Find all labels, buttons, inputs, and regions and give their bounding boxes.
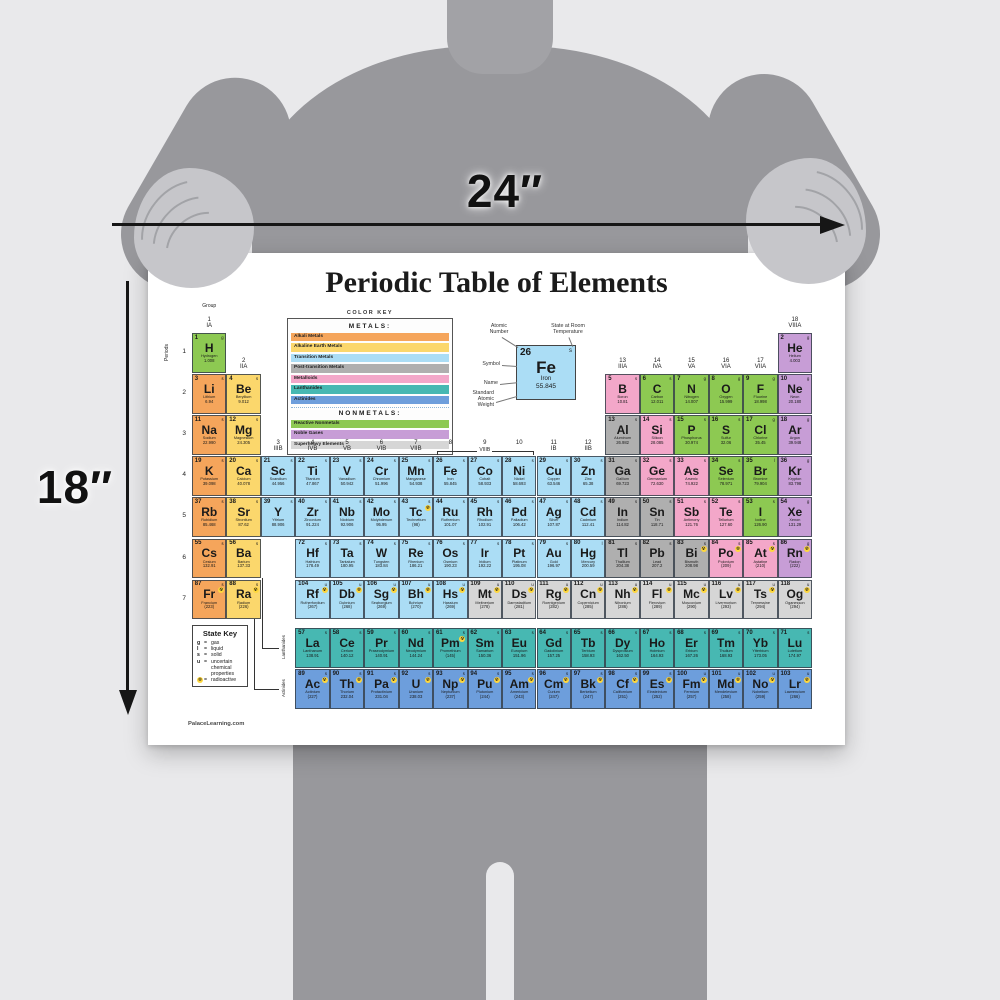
element-cell-Zr: 40sZrZirconium91.224 — [295, 497, 329, 537]
element-cell-Ce: 58sCeCerium140.12 — [330, 628, 364, 668]
element-cell-Np: 93s☢NpNeptunium(237) — [433, 669, 467, 709]
element-cell-Eu: 63sEuEuropium151.96 — [502, 628, 536, 668]
height-arrow-shaft — [126, 281, 129, 693]
lanthanides-label: Lanthanides — [281, 628, 291, 667]
radioactive-icon: ☢ — [425, 505, 431, 511]
element-cell-Am: 95s☢AmAmericium(243) — [502, 669, 536, 709]
radioactive-icon: ☢ — [494, 587, 500, 593]
element-cell-K: 19sKPotassium39.098 — [192, 456, 226, 496]
periodic-table: 1gHHydrogen1.0082gHeHelium4.0033sLiLithi… — [148, 253, 845, 745]
element-cell-Se: 34sSeSelenium78.971 — [709, 456, 743, 496]
element-cell-Es: 99s☢EsEinsteinium(252) — [640, 669, 674, 709]
radioactive-icon: ☢ — [459, 636, 465, 642]
element-cell-Sn: 50sSnTin118.71 — [640, 497, 674, 537]
element-cell-Yb: 70sYbYtterbium173.05 — [743, 628, 777, 668]
radioactive-icon: ☢ — [528, 677, 534, 683]
radioactive-icon: ☢ — [459, 677, 465, 683]
mannequin-leg-gap — [486, 862, 514, 1000]
element-cell-Bi: 83s☢BiBismuth208.98 — [674, 539, 708, 579]
state-key-entry: ☢=radioactive — [197, 677, 243, 683]
element-cell-Ra: 88s☢RaRadium(226) — [226, 580, 260, 620]
element-cell-Mn: 25sMnManganese54.938 — [399, 456, 433, 496]
element-cell-Fm: 100u☢FmFermium(257) — [674, 669, 708, 709]
element-cell-Po: 84s☢PoPolonium(209) — [709, 539, 743, 579]
period-number-1: 1 — [174, 348, 186, 355]
element-cell-Ta: 73sTaTantalum180.95 — [330, 539, 364, 579]
period-number-2: 2 — [174, 389, 186, 396]
group-label-17: 17VIIA — [743, 358, 777, 371]
element-cell-N: 7gNNitrogen14.007 — [674, 374, 708, 414]
radioactive-icon: ☢ — [563, 677, 569, 683]
brand-url: PalaceLearning.com — [188, 721, 244, 727]
element-cell-Ac: 89s☢AcActinium(227) — [295, 669, 329, 709]
radioactive-icon: ☢ — [701, 677, 707, 683]
element-cell-Br: 35lBrBromine79.904 — [743, 456, 777, 496]
radioactive-icon: ☢ — [632, 587, 638, 593]
element-cell-Lv: 116u☢LvLivermorium(293) — [709, 580, 743, 620]
group-label-15: 15VA — [674, 358, 708, 371]
element-cell-Th: 90s☢ThThorium232.04 — [330, 669, 364, 709]
height-dimension-label: 18″ — [30, 460, 120, 514]
element-cell-Ne: 10gNeNeon20.180 — [778, 374, 812, 414]
element-cell-Ar: 18gArArgon39.948 — [778, 415, 812, 455]
element-cell-Cd: 48sCdCadmium112.41 — [571, 497, 605, 537]
element-cell-Fr: 87s☢FrFrancium(223) — [192, 580, 226, 620]
radioactive-icon: ☢ — [735, 546, 741, 552]
width-arrowhead-icon — [820, 216, 845, 234]
element-cell-Mo: 42sMoMolybdenum95.95 — [364, 497, 398, 537]
width-dimension-label: 24″ — [395, 164, 615, 218]
element-cell-As: 33sAsArsenic74.922 — [674, 456, 708, 496]
group-label-14: 14IVA — [640, 358, 674, 371]
element-cell-Cr: 24sCrChromium51.996 — [364, 456, 398, 496]
radioactive-icon: ☢ — [425, 587, 431, 593]
element-cell-Xe: 54gXeXenon131.29 — [778, 497, 812, 537]
group-axis-caption: Group — [192, 303, 226, 309]
element-cell-I: 53sIIodine126.90 — [743, 497, 777, 537]
periodic-table-poster: Periodic Table of Elements COLOR KEY MET… — [148, 253, 845, 745]
element-cell-F: 9gFFluorine18.998 — [743, 374, 777, 414]
group-label-13: 13IIIA — [605, 358, 639, 371]
group-label-2: 2IIA — [226, 358, 260, 371]
element-cell-Pb: 82sPbLead207.2 — [640, 539, 674, 579]
element-cell-Kr: 36gKrKrypton83.798 — [778, 456, 812, 496]
group-label-4: 4IVB — [295, 440, 329, 453]
actinide-bracket — [254, 619, 279, 690]
element-cell-Pr: 59sPrPraseodymium140.91 — [364, 628, 398, 668]
height-arrowhead-icon — [119, 690, 137, 715]
element-cell-Pm: 61s☢PmPromethium(145) — [433, 628, 467, 668]
element-cell-Te: 52sTeTellurium127.60 — [709, 497, 743, 537]
element-cell-Cs: 55sCsCesium132.91 — [192, 539, 226, 579]
product-photo: Periodic Table of Elements COLOR KEY MET… — [0, 0, 1000, 1000]
element-cell-Rh: 45sRhRhodium102.91 — [468, 497, 502, 537]
viiib-label: VIIIB — [433, 447, 536, 453]
radioactive-icon: ☢ — [597, 677, 603, 683]
group-label-18: 18VIIIA — [778, 317, 812, 330]
element-cell-Og: 118u☢OgOganesson(294) — [778, 580, 812, 620]
element-cell-Si: 14sSiSilicon28.085 — [640, 415, 674, 455]
group-label-7: 7VIIB — [399, 440, 433, 453]
element-cell-Rb: 37sRbRubidium85.468 — [192, 497, 226, 537]
period-number-3: 3 — [174, 430, 186, 437]
radioactive-icon: ☢ — [701, 587, 707, 593]
element-cell-Au: 79sAuGold196.97 — [537, 539, 571, 579]
radioactive-icon: ☢ — [494, 677, 500, 683]
element-cell-C: 6sCCarbon12.011 — [640, 374, 674, 414]
element-cell-Ni: 28sNiNickel58.693 — [502, 456, 536, 496]
element-cell-Hs: 108u☢HsHassium(269) — [433, 580, 467, 620]
element-cell-Tm: 69sTmThulium168.93 — [709, 628, 743, 668]
element-cell-At: 85s☢AtAstatine(210) — [743, 539, 777, 579]
mannequin-torso — [252, 46, 748, 278]
element-cell-P: 15sPPhosphorus30.974 — [674, 415, 708, 455]
group-label-8: 8 — [433, 440, 467, 447]
element-cell-Co: 27sCoCobalt58.933 — [468, 456, 502, 496]
element-cell-Sc: 21sScScandium44.956 — [261, 456, 295, 496]
element-cell-Pt: 78sPtPlatinum195.08 — [502, 539, 536, 579]
radioactive-icon: ☢ — [804, 546, 810, 552]
element-cell-Ag: 47sAgSilver107.87 — [537, 497, 571, 537]
radioactive-icon: ☢ — [253, 587, 259, 593]
element-cell-Cn: 112u☢CnCopernicium(285) — [571, 580, 605, 620]
element-cell-U: 92s☢UUranium238.03 — [399, 669, 433, 709]
group-label-9: 9 — [468, 440, 502, 447]
element-cell-Tc: 43s☢TcTechnetium(98) — [399, 497, 433, 537]
element-cell-Hg: 80lHgMercury200.59 — [571, 539, 605, 579]
element-cell-Cu: 29sCuCopper63.546 — [537, 456, 571, 496]
element-cell-Nb: 41sNbNiobium92.906 — [330, 497, 364, 537]
element-cell-Pa: 91s☢PaProtactinium231.04 — [364, 669, 398, 709]
group-label-11: 11IB — [537, 440, 571, 453]
element-cell-Hf: 72sHfHafnium178.49 — [295, 539, 329, 579]
element-cell-Bk: 97s☢BkBerkelium(247) — [571, 669, 605, 709]
element-cell-Re: 75sReRhenium186.21 — [399, 539, 433, 579]
element-cell-Fl: 114u☢FlFlerovium(289) — [640, 580, 674, 620]
element-cell-Er: 68sErErbium167.26 — [674, 628, 708, 668]
element-cell-Bh: 107u☢BhBohrium(270) — [399, 580, 433, 620]
radioactive-icon: ☢ — [666, 677, 672, 683]
radioactive-icon: ☢ — [322, 677, 328, 683]
element-cell-Ge: 32sGeGermanium72.630 — [640, 456, 674, 496]
element-cell-Ru: 44sRuRuthenium101.07 — [433, 497, 467, 537]
period-number-5: 5 — [174, 512, 186, 519]
element-cell-Y: 39sYYttrium88.906 — [261, 497, 295, 537]
element-cell-Be: 4sBeBeryllium9.012 — [226, 374, 260, 414]
radioactive-icon: ☢ — [391, 587, 397, 593]
width-arrow-shaft — [112, 223, 824, 226]
radioactive-icon: ☢ — [804, 587, 810, 593]
element-cell-Zn: 30sZnZinc65.38 — [571, 456, 605, 496]
element-cell-Fe: 26sFeIron55.845 — [433, 456, 467, 496]
element-cell-Db: 105u☢DbDubnium(268) — [330, 580, 364, 620]
element-cell-H: 1gHHydrogen1.008 — [192, 333, 226, 373]
group-label-6: 6VIB — [364, 440, 398, 453]
element-cell-Rf: 104u☢RfRutherfordium(267) — [295, 580, 329, 620]
element-cell-Lu: 71sLuLutetium174.97 — [778, 628, 812, 668]
element-cell-No: 102u☢NoNobelium(259) — [743, 669, 777, 709]
element-cell-Li: 3sLiLithium6.94 — [192, 374, 226, 414]
radioactive-icon: ☢ — [197, 677, 203, 683]
period-number-4: 4 — [174, 471, 186, 478]
element-cell-B: 5sBBoron10.81 — [605, 374, 639, 414]
element-cell-W: 74sWTungsten183.84 — [364, 539, 398, 579]
element-cell-Sg: 106u☢SgSeaborgium(269) — [364, 580, 398, 620]
element-cell-Cm: 96s☢CmCurium(247) — [537, 669, 571, 709]
element-cell-Mg: 12sMgMagnesium24.305 — [226, 415, 260, 455]
state-key-entry: u=uncertain chemical properties — [197, 659, 243, 678]
element-cell-Ga: 31sGaGallium69.723 — [605, 456, 639, 496]
radioactive-icon: ☢ — [701, 546, 707, 552]
radioactive-icon: ☢ — [356, 677, 362, 683]
element-cell-Sb: 51sSbAntimony121.76 — [674, 497, 708, 537]
group-label-3: 3IIIB — [261, 440, 295, 453]
element-cell-Ba: 56sBaBarium137.33 — [226, 539, 260, 579]
element-cell-Gd: 64sGdGadolinium157.25 — [537, 628, 571, 668]
element-cell-Pd: 46sPdPalladium106.42 — [502, 497, 536, 537]
element-cell-Mc: 115u☢McMoscovium(290) — [674, 580, 708, 620]
actinides-label: Actinides — [281, 669, 291, 708]
group-label-1: 1IA — [192, 317, 226, 330]
element-cell-Sr: 38sSrStrontium87.62 — [226, 497, 260, 537]
period-number-6: 6 — [174, 554, 186, 561]
element-cell-Md: 101u☢MdMendelevium(258) — [709, 669, 743, 709]
group-label-12: 12IIB — [571, 440, 605, 453]
element-cell-Ca: 20sCaCalcium40.078 — [226, 456, 260, 496]
radioactive-icon: ☢ — [322, 587, 328, 593]
period-axis-caption: Periods — [164, 335, 170, 371]
radioactive-icon: ☢ — [769, 677, 775, 683]
element-cell-Cf: 98s☢CfCalifornium(251) — [605, 669, 639, 709]
mannequin-neck — [447, 0, 553, 74]
element-cell-Os: 76sOsOsmium190.23 — [433, 539, 467, 579]
element-cell-Lr: 103u☢LrLawrencium(266) — [778, 669, 812, 709]
state-key: State Key g=gasl=liquids=solidu=uncertai… — [192, 625, 248, 687]
state-key-title: State Key — [197, 629, 243, 638]
element-cell-Nd: 60sNdNeodymium144.24 — [399, 628, 433, 668]
period-number-7: 7 — [174, 595, 186, 602]
group-label-5: 5VB — [330, 440, 364, 453]
element-cell-Pu: 94s☢PuPlutonium(244) — [468, 669, 502, 709]
element-cell-Ts: 117u☢TsTennessine(294) — [743, 580, 777, 620]
element-cell-Rn: 86g☢RnRadon(222) — [778, 539, 812, 579]
element-cell-Na: 11sNaSodium22.990 — [192, 415, 226, 455]
radioactive-icon: ☢ — [425, 677, 431, 683]
element-cell-Nh: 113u☢NhNihonium(286) — [605, 580, 639, 620]
radioactive-icon: ☢ — [632, 677, 638, 683]
element-cell-Ds: 110u☢DsDarmstadtium(281) — [502, 580, 536, 620]
element-cell-O: 8gOOxygen15.999 — [709, 374, 743, 414]
element-cell-Mt: 109u☢MtMeitnerium(278) — [468, 580, 502, 620]
radioactive-icon: ☢ — [563, 587, 569, 593]
element-cell-Rg: 111u☢RgRoentgenium(282) — [537, 580, 571, 620]
state-key-list: g=gasl=liquids=solidu=uncertain chemical… — [197, 640, 243, 683]
element-cell-Ho: 67sHoHolmium164.93 — [640, 628, 674, 668]
element-cell-He: 2gHeHelium4.003 — [778, 333, 812, 373]
group-label-16: 16VIA — [709, 358, 743, 371]
radioactive-icon: ☢ — [391, 677, 397, 683]
element-cell-Dy: 66sDyDysprosium162.50 — [605, 628, 639, 668]
element-cell-Cl: 17gClChlorine35.45 — [743, 415, 777, 455]
group-label-10: 10 — [502, 440, 536, 447]
element-cell-Tb: 65sTbTerbium158.93 — [571, 628, 605, 668]
element-cell-S: 16sSSulfur32.06 — [709, 415, 743, 455]
element-cell-Tl: 81sTlThallium204.38 — [605, 539, 639, 579]
radioactive-icon: ☢ — [804, 677, 810, 683]
element-cell-Ti: 22sTiTitanium47.867 — [295, 456, 329, 496]
element-cell-V: 23sVVanadium50.942 — [330, 456, 364, 496]
element-cell-Ir: 77sIrIridium192.22 — [468, 539, 502, 579]
element-cell-In: 49sInIndium114.82 — [605, 497, 639, 537]
radioactive-icon: ☢ — [735, 677, 741, 683]
element-cell-Al: 13sAlAluminum26.982 — [605, 415, 639, 455]
element-cell-La: 57sLaLanthanum138.91 — [295, 628, 329, 668]
element-cell-Sm: 62sSmSamarium150.36 — [468, 628, 502, 668]
